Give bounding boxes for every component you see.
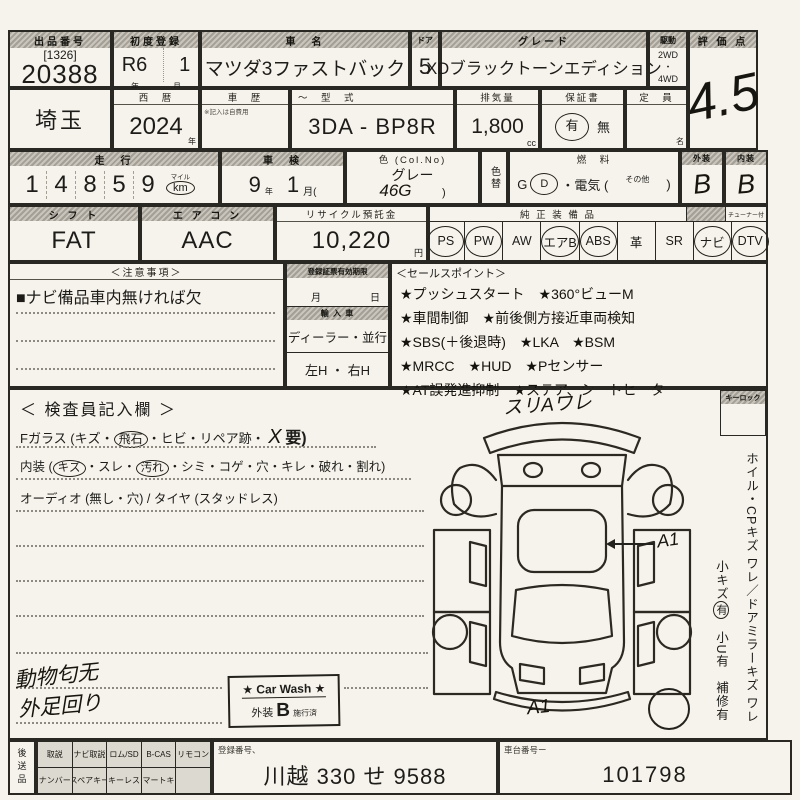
sidebar-small-scratch-yes-circled: 有 (713, 601, 729, 619)
exterior-grade: B (691, 168, 712, 201)
equipment-header-gray-patch (686, 207, 725, 221)
grid-cell: リモコン (175, 742, 210, 767)
color-change-label: 色替 (487, 166, 502, 190)
equip-label: PS (427, 226, 464, 257)
inspector-line-audio-tire: オーディオ (無し・穴) / タイヤ (スタッドレス) (20, 488, 278, 507)
equip-item-pw: PW (464, 222, 502, 260)
equip-label: PW (465, 226, 502, 257)
equip-item-airbag: エアB (540, 222, 578, 260)
import-header: 輸 入 車 (287, 307, 388, 320)
warranty-cell: 保証書 有 無 (540, 88, 625, 150)
recycle-fee-unit: 円 (414, 246, 423, 259)
inspection-month-unit: 月( (303, 183, 316, 198)
diagram-arrow-line (614, 543, 654, 545)
car-name: マツダ3ファストバック (205, 54, 406, 81)
interior-grade: B (736, 168, 756, 200)
inspection-cell: 車 検 9 年 1 月( (220, 150, 345, 205)
model-code-cell: ～ 型 式 3DA - BP8R (290, 88, 455, 150)
capacity-cell: 定 員 名 (625, 88, 688, 150)
first-registration-month: 1 (179, 54, 190, 77)
sales-points-header: ＜セールスポイント＞ (392, 264, 766, 282)
color-cell: 色 (Col.No) グレー 46G ) (345, 150, 480, 205)
diagram-annotation-bottom: A1 (526, 696, 551, 720)
lot-number: 20388 (21, 61, 98, 87)
car-wash-ext-label: 外装 (251, 704, 273, 720)
chassis-number: 101798 (602, 762, 687, 788)
displacement-header: 排気量 (457, 90, 538, 105)
car-topview-svg (420, 392, 705, 727)
equip-item-abs: ABS (579, 222, 617, 260)
mileage-header: 走 行 (10, 152, 218, 166)
interior-grade-cell: 内装 B (724, 150, 768, 205)
score-header: 評 価 点 (690, 32, 756, 48)
year-value: 2024 (129, 113, 182, 141)
model-header: ～ 型 式 (292, 90, 453, 105)
later-items-label: 後送品 (16, 748, 29, 787)
model-code: 3DA - BP8R (308, 114, 437, 140)
interior-header: 内装 (726, 152, 766, 165)
mileage-digit: 8 (76, 171, 105, 199)
grid-cell (175, 768, 210, 793)
validity-day-label: 日 (370, 289, 380, 304)
equipment-header: 純 正 装 備 品 (430, 207, 686, 221)
grade-header: グレード (442, 32, 646, 48)
equip-item-navi: ナビ (693, 222, 731, 260)
equip-label: 革 (618, 226, 655, 257)
grid-cell: 取説 (38, 742, 72, 767)
prefecture: 埼玉 (35, 103, 85, 135)
mileage-digit: 9 (134, 171, 162, 199)
equip-label: AW (503, 226, 540, 257)
displacement-value: 1,800 (471, 115, 524, 139)
capacity-unit: 名 (676, 136, 684, 147)
fuel-header: 燃 料 (510, 152, 678, 165)
exterior-grade-cell: 外装 B (680, 150, 724, 205)
score-value: 4.5 (681, 61, 764, 135)
shift-cell: シ フ ト FAT (8, 205, 140, 262)
tuner-note: チューナー付 (725, 207, 766, 221)
lot-number-header: 出品番号 (10, 32, 110, 48)
mileage-digit: 5 (105, 171, 134, 199)
fuel-g: G (517, 177, 527, 192)
car-name-header: 車 名 (202, 32, 408, 48)
equip-item-ps: PS (427, 222, 464, 260)
warranty-yes-circled: 有 (555, 113, 589, 141)
color-paren-close: ) (442, 187, 446, 199)
grid-cell: ナンバー (38, 768, 72, 793)
fuel-other-label: その他 (625, 174, 649, 185)
chassis-number-header: 車台番号ー (500, 742, 790, 756)
equip-label: ナビ (694, 226, 731, 257)
sidebar-small-scratch: 小キズ (714, 560, 728, 601)
registration-number: 川越 330 せ 9588 (264, 759, 447, 791)
diagram-arrow-head (606, 539, 615, 549)
grid-cell: スペアキー (72, 768, 107, 793)
exterior-header: 外装 (682, 152, 722, 165)
drive-2wd: 2WD (658, 49, 678, 61)
shift-value: FAT (51, 227, 96, 255)
equip-label: ABS (580, 226, 617, 257)
doors-header: ドア (412, 32, 438, 48)
lot-number-cell: 出品番号 [1326] 20388 (8, 30, 112, 88)
sales-point-line: ★SBS(＋後退時) ★LKA ★BSM (400, 330, 758, 354)
fuel-paren-close: ) (666, 177, 670, 192)
sidebar-wheel-note: ホイル・CPキズ ワレ／ドアミラーキズ ワレ (742, 452, 761, 740)
notes-header: ＜注意事項＞ (10, 264, 283, 280)
fuel-d-circled: D (530, 173, 558, 195)
displacement-unit: cc (527, 138, 536, 148)
car-wash-status: 施行済 (293, 707, 317, 718)
year-unit: 年 (188, 136, 196, 147)
color-code-handwritten: 46G (379, 181, 411, 200)
diagram-annotation-right: A1 (656, 529, 681, 553)
mileage-digit: 4 (47, 171, 76, 199)
equipment-cell: 純 正 装 備 品 チューナー付 PS PW AW エアB ABS 革 SR ナ… (428, 205, 768, 262)
car-name-cell: 車 名 マツダ3ファストバック (200, 30, 410, 88)
grid-cell: ナビ取説 (72, 742, 107, 767)
prefecture-cell: 埼玉 (8, 88, 112, 150)
sales-point-line: ★車間制御 ★前後側方接近車両検知 (400, 306, 758, 330)
equip-item-sr: SR (655, 222, 693, 260)
fglass-required: 要) (285, 430, 306, 447)
capacity-header: 定 員 (627, 90, 686, 105)
history-header: 車 歴 (202, 90, 288, 105)
keylock-header: キーロック (721, 391, 765, 404)
car-wash-title: ★ Car Wash ★ (242, 680, 325, 698)
first-registration-cell: 初度登録 R6 1 年 月 (112, 30, 200, 88)
mileage-digit: 1 (18, 171, 47, 199)
grid-cell: スマートキー (141, 768, 176, 793)
equip-item-leather: 革 (617, 222, 655, 260)
warranty-header: 保証書 (542, 90, 623, 105)
aircon-cell: エ ア コ ン AAC (140, 205, 275, 262)
notes-line: ■ナビ備品車内無ければ欠 (10, 280, 283, 312)
aircon-header: エ ア コ ン (142, 207, 273, 221)
recycle-fee-cell: リサイクル預託金 10,220 円 (275, 205, 428, 262)
shift-header: シ フ ト (10, 207, 138, 221)
sidebar-small-u: 小U有 (714, 631, 728, 668)
first-registration-header: 初度登録 (114, 32, 198, 48)
sidebar-repair: 補修有 (714, 681, 728, 722)
fglass-x-mark: X (268, 426, 281, 448)
displacement-cell: 排気量 1,800 cc (455, 88, 540, 150)
later-items-grid: 取説 ナビ取説 ロム/SD B-CAS リモコン ナンバー スペアキー キーレス… (36, 740, 212, 795)
interior-scratch-circled: キズ (53, 460, 86, 477)
recycle-fee-header: リサイクル預託金 (277, 207, 426, 222)
year-cell: 西 暦 2024 年 (112, 88, 200, 150)
drive-4wd: 4WD (658, 73, 678, 85)
car-wash-stamp: ★ Car Wash ★ 外装 B 施行済 (228, 674, 341, 728)
sales-points-cell: ＜セールスポイント＞ ★プッシュスタート ★360°ビューM ★車間制御 ★前後… (390, 262, 768, 388)
inspection-year-unit: 年 (265, 186, 273, 197)
grid-cell: B-CAS (141, 742, 176, 767)
history-note: ※記入は自費用 (202, 105, 288, 117)
auction-sheet: 出品番号 [1326] 20388 初度登録 R6 1 年 月 車 名 マツダ3… (0, 0, 800, 800)
history-cell: 車 歴 ※記入は自費用 (200, 88, 290, 150)
inspector-line-interior: 内装 (キズ・スレ・汚れ・シミ・コゲ・穴・キレ・破れ・割れ) (20, 456, 385, 477)
inspection-header: 車 検 (222, 152, 343, 166)
registration-number-header: 登録番号、 (214, 742, 496, 756)
year-header: 西 暦 (114, 90, 198, 105)
sales-point-line: ★MRCC ★HUD ★Pセンサー (400, 354, 758, 378)
grid-cell: ロム/SD (106, 742, 141, 767)
equip-item-aw: AW (502, 222, 540, 260)
sidebar-small-notes: 小キズ有 小U有 補修有 (712, 560, 731, 740)
first-registration-era: R6 (122, 54, 148, 77)
validity-cell: 登録証票有効期限 月 日 輸 入 車 ディーラー・並行 左H ・ 右H (285, 262, 390, 388)
grid-cell: キーレス (106, 768, 141, 793)
equip-label: エアB (541, 226, 578, 257)
chassis-number-cell: 車台番号ー 101798 (498, 740, 792, 795)
grade-cell: グレード XDブラックトーンエディション (440, 30, 648, 88)
equip-label: SR (656, 226, 693, 257)
recycle-fee-value: 10,220 (312, 227, 391, 255)
mile-label: マイル (171, 174, 191, 181)
drivetrain-header: 駆動 (650, 32, 686, 48)
score-cell: 評 価 点 4.5 (688, 30, 758, 150)
validity-month-label: 月 (311, 289, 321, 304)
fuel-cell: 燃 料 G D ・電気 ( その他 ) (508, 150, 680, 205)
keylock-cell: キーロック (720, 390, 766, 436)
import-value: ディーラー・並行 (287, 320, 388, 353)
interior-dirt-circled: 汚れ (136, 460, 169, 477)
color-header: 色 (Col.No) (347, 152, 478, 165)
later-items-label-cell: 後送品 (8, 740, 36, 795)
warranty-no: 無 (597, 117, 610, 136)
fuel-electric: ・電気 ( (561, 175, 608, 194)
km-unit-circled: km (166, 181, 195, 195)
aircon-value: AAC (181, 227, 233, 255)
inspection-year: 9 (249, 172, 261, 198)
handle-value: 左H ・ 右H (287, 353, 388, 386)
inspector-header: ＜ 検査員記入欄 ＞ (20, 396, 177, 420)
registration-number-cell: 登録番号、 川越 330 せ 9588 (212, 740, 498, 795)
car-damage-diagram (420, 392, 705, 727)
inspection-month: 1 (287, 172, 299, 198)
drive-dot: ・ (663, 61, 672, 73)
validity-header: 登録証票有効期限 (287, 264, 388, 278)
equip-item-dtv: DTV (731, 222, 769, 260)
equip-label: DTV (732, 226, 769, 257)
sales-point-line: ★プッシュスタート ★360°ビューM (400, 282, 758, 306)
color-change-cell: 色替 (480, 150, 508, 205)
grade-value: XDブラックトーンエディション (426, 55, 661, 79)
mileage-cell: 走 行 1 4 8 5 9 マイル km (8, 150, 220, 205)
car-wash-grade: B (276, 699, 290, 721)
notes-cell: ＜注意事項＞ ■ナビ備品車内無ければ欠 (8, 262, 285, 388)
